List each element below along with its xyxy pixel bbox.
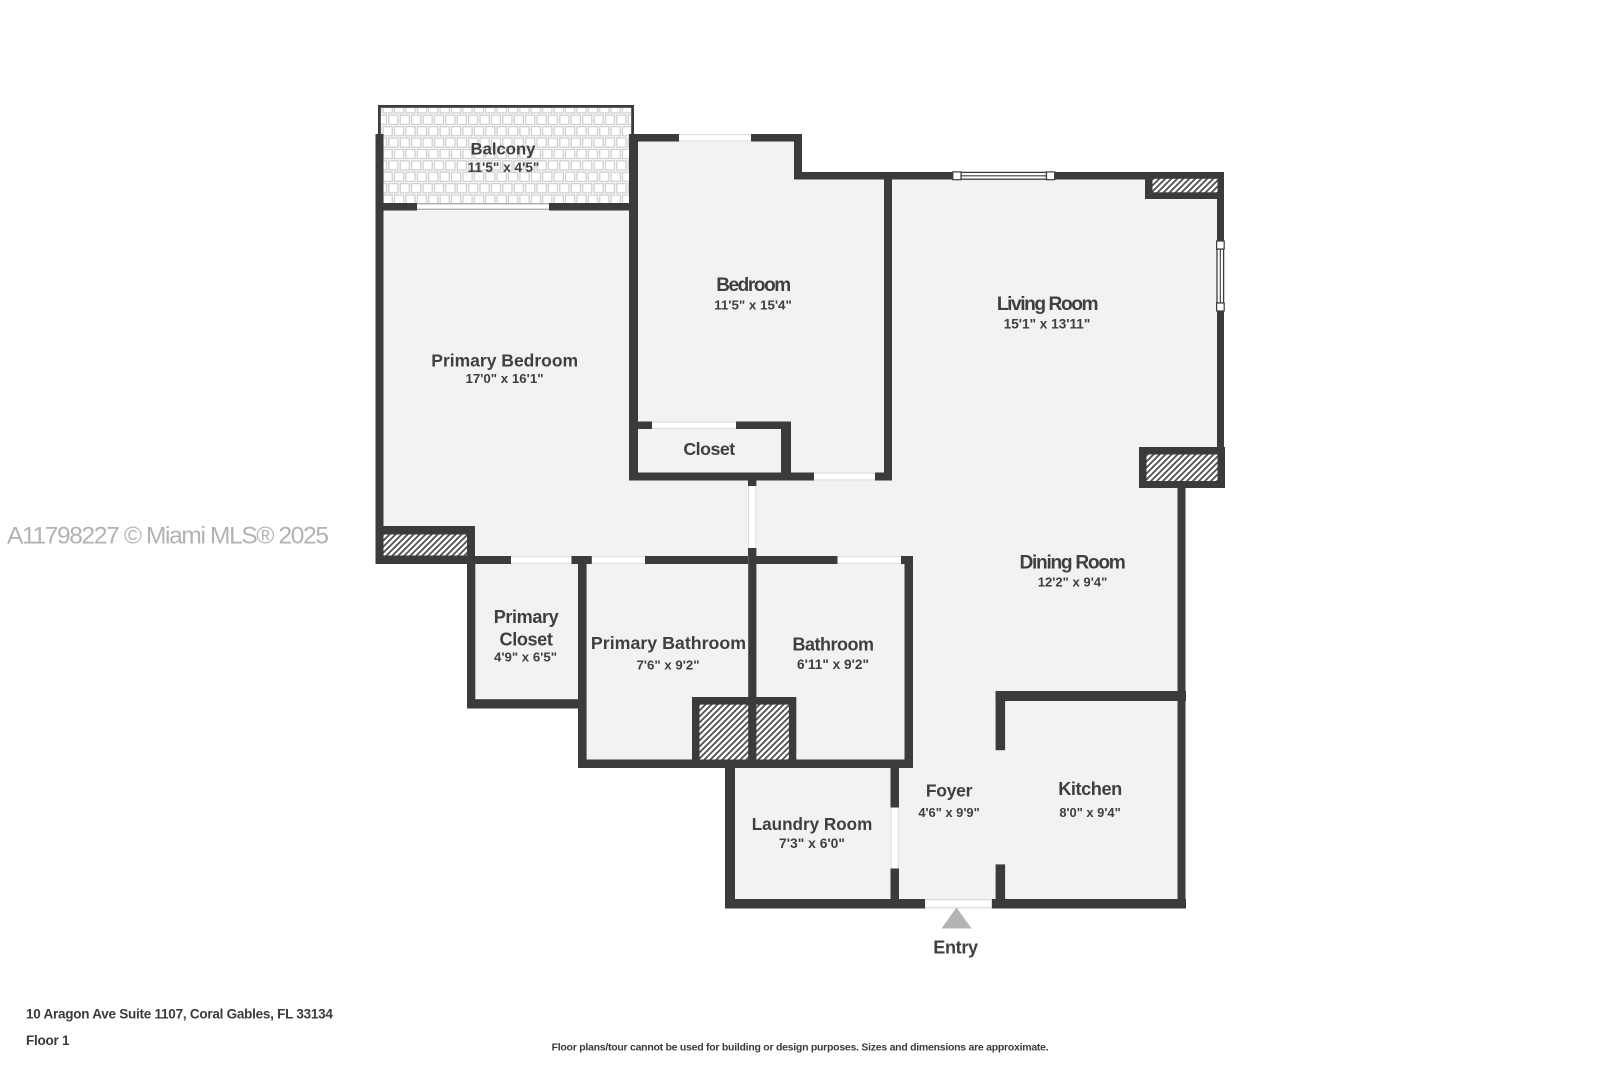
svg-text:11'5" x 15'4": 11'5" x 15'4" <box>714 298 792 313</box>
svg-text:17'0" x 16'1": 17'0" x 16'1" <box>465 371 543 386</box>
svg-text:Primary: Primary <box>494 607 559 627</box>
svg-text:Bathroom: Bathroom <box>793 635 874 655</box>
svg-text:11'5" x 4'5": 11'5" x 4'5" <box>468 160 540 175</box>
svg-text:Primary Bedroom: Primary Bedroom <box>431 351 578 371</box>
svg-text:10 Aragon Ave Suite 1107, Cora: 10 Aragon Ave Suite 1107, Coral Gables, … <box>26 1006 333 1021</box>
svg-text:15'1" x 13'11": 15'1" x 13'11" <box>1004 317 1091 332</box>
svg-text:Floor plans/tour cannot be use: Floor plans/tour cannot be used for buil… <box>552 1042 1049 1054</box>
svg-text:Balcony: Balcony <box>471 140 537 159</box>
svg-text:Primary Bathroom: Primary Bathroom <box>591 633 746 653</box>
svg-text:4'6" x 9'9": 4'6" x 9'9" <box>918 805 979 820</box>
svg-text:Closet: Closet <box>683 439 735 459</box>
svg-text:Living Room: Living Room <box>997 294 1098 315</box>
svg-text:Laundry Room: Laundry Room <box>752 815 873 834</box>
svg-text:7'6" x 9'2": 7'6" x 9'2" <box>636 658 699 673</box>
svg-text:Closet: Closet <box>500 630 553 650</box>
svg-text:Foyer: Foyer <box>926 781 973 801</box>
svg-text:A11798227 © Miami MLS® 2025: A11798227 © Miami MLS® 2025 <box>7 523 328 550</box>
svg-text:4'9" x 6'5": 4'9" x 6'5" <box>494 650 557 665</box>
svg-text:12'2" x 9'4": 12'2" x 9'4" <box>1038 575 1108 590</box>
svg-text:Kitchen: Kitchen <box>1058 779 1122 799</box>
svg-text:Bedroom: Bedroom <box>716 275 790 296</box>
svg-text:Floor 1: Floor 1 <box>26 1033 70 1048</box>
svg-text:Entry: Entry <box>933 938 978 958</box>
svg-text:7'3" x 6'0": 7'3" x 6'0" <box>779 835 845 851</box>
svg-text:8'0" x 9'4": 8'0" x 9'4" <box>1059 805 1120 820</box>
svg-text:Dining Room: Dining Room <box>1019 553 1124 574</box>
svg-text:6'11" x 9'2": 6'11" x 9'2" <box>797 657 869 672</box>
